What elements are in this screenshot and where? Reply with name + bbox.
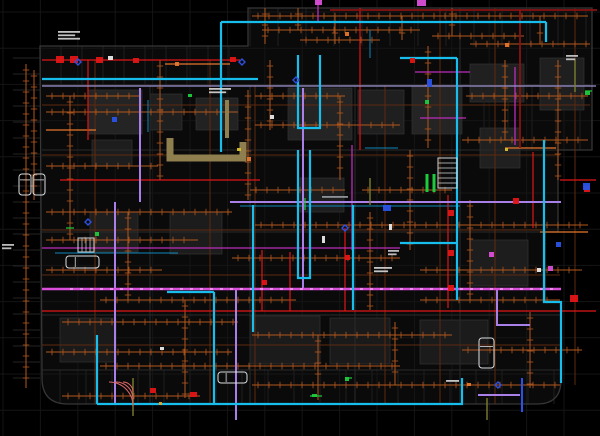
cad-viewport[interactable] bbox=[0, 0, 600, 436]
floor-plan-drawing bbox=[0, 0, 600, 436]
